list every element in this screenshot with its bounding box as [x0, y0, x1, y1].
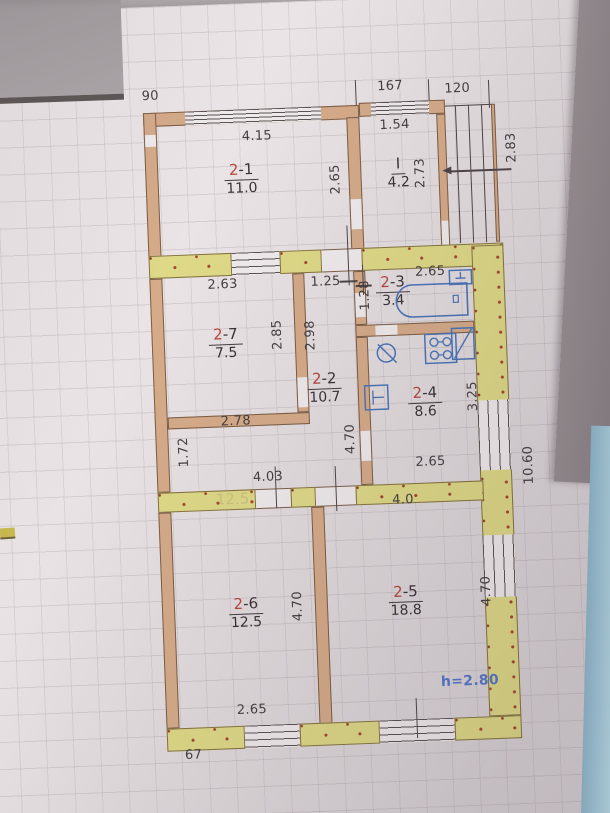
room-label-2-2: 2-2 10.7 — [294, 367, 355, 407]
window-top-hall — [371, 100, 429, 116]
photo-of-floor-plan: 90 167 120 — [0, 0, 610, 813]
dim-top-left: 90 — [130, 88, 171, 105]
wall-middle-seg2 — [279, 249, 322, 274]
room-area: 11.0 — [202, 178, 283, 199]
dim-height-room25: 4.70 — [478, 569, 495, 614]
wall-left-middle — [149, 279, 170, 493]
dim-kitchen-width: 2.65 — [400, 453, 461, 470]
dim-lobby-width: 4.03 — [238, 469, 299, 486]
wall-left-bottom — [158, 512, 179, 728]
dim-room25-top: 4.0 — [373, 491, 434, 508]
room-area: 8.6 — [395, 402, 456, 422]
dim-door-room27-b: 2.98 — [302, 315, 319, 356]
left-edge-yellow-mark — [0, 527, 15, 539]
room-number: I — [391, 155, 406, 174]
wall-middle-seg1 — [148, 253, 232, 279]
entrance-arrow-head — [442, 166, 451, 174]
dim-kitchen-height: 3.25 — [465, 374, 482, 419]
dim-width-room27: 2.63 — [192, 276, 253, 293]
door-room21-hall — [349, 199, 363, 229]
dim-door-room27-a: 2.85 — [269, 314, 286, 355]
dim-width-hall: 1.54 — [364, 116, 425, 133]
wall-bottom-seg2 — [299, 721, 380, 747]
dim-height-room26: 4.70 — [290, 584, 307, 629]
room-area: 7.5 — [196, 344, 257, 364]
dim-total-right: 10.60 — [520, 443, 537, 488]
dim-top-middle: 167 — [360, 78, 421, 95]
dim-height-hall: 2.73 — [412, 153, 429, 194]
room-area: 18.8 — [376, 601, 437, 621]
room-number: 2-1 — [224, 161, 259, 181]
round-sink-icon — [374, 340, 401, 367]
kitchen-sink-icon — [364, 384, 390, 411]
room-label-2-1: 2-1 11.0 — [201, 158, 282, 199]
room-number: 2-4 — [407, 384, 442, 404]
room-number: 2-2 — [307, 370, 342, 390]
window-top-room21 — [185, 106, 321, 125]
room-area: 12.5 — [216, 613, 277, 633]
door-room21-corridor — [321, 248, 362, 273]
dim-room26-bottom: 2.65 — [222, 701, 283, 718]
wall-room21-hall — [346, 117, 364, 251]
fridge-icon — [450, 327, 475, 361]
wall-room26-room25 — [311, 507, 333, 732]
dim-top-right: 120 — [427, 80, 488, 97]
underlying-paper-sheet-edge — [0, 0, 124, 104]
room-label-2-5: 2-5 18.8 — [375, 580, 436, 620]
washbasin-icon — [448, 269, 473, 286]
porch-step-line — [455, 105, 461, 243]
room-number: 2-7 — [208, 326, 243, 346]
window-room26-bottom — [245, 724, 301, 749]
dim-height-room21: 2.65 — [327, 159, 344, 200]
room-label-2-4: 2-4 8.6 — [395, 381, 456, 421]
door-unit-room21-room27 — [231, 251, 280, 276]
floor-plan-drawing: 90 167 120 — [138, 73, 547, 787]
dim-porch-depth: 2.83 — [503, 125, 520, 170]
ceiling-height-note: h=2.80 — [433, 672, 508, 691]
bleed-through-text: 12.5 — [215, 489, 249, 508]
dim-hall-lower: 1.72 — [176, 432, 193, 473]
window-kitchen-right — [477, 399, 512, 470]
room-number: 2-6 — [228, 595, 263, 615]
dim-width-room27-bottom: 2.78 — [206, 413, 267, 430]
porch-right-edge — [491, 104, 500, 242]
door-hall-porch — [440, 221, 450, 247]
dim-corridor-length: 4.70 — [342, 417, 359, 462]
opening-left-wall — [144, 135, 157, 147]
dim-bottom-left: 67 — [173, 747, 214, 764]
dim-corridor-top: 1.25 — [300, 273, 351, 290]
porch-step-line — [468, 105, 474, 243]
wall-cross2-pier — [290, 487, 316, 508]
door-kitchen — [359, 431, 372, 461]
floor-plan-paper-sheet: 90 167 120 — [0, 0, 610, 813]
entrance-arrow-line — [449, 168, 511, 172]
room-number: 2-5 — [388, 583, 423, 603]
dim-height-bathroom: 1.28 — [357, 275, 374, 316]
bathtub-icon — [393, 281, 470, 320]
room-area: 10.7 — [295, 388, 356, 408]
room-label-2-6: 2-6 12.5 — [215, 592, 276, 632]
dim-width-room21: 4.15 — [227, 128, 288, 145]
porch-step-line — [481, 104, 487, 242]
door-bath-kitchen — [375, 324, 397, 337]
room-label-2-7: 2-7 7.5 — [195, 323, 256, 363]
wall-bottom-seg3 — [454, 715, 522, 741]
door-room26 — [255, 488, 291, 509]
